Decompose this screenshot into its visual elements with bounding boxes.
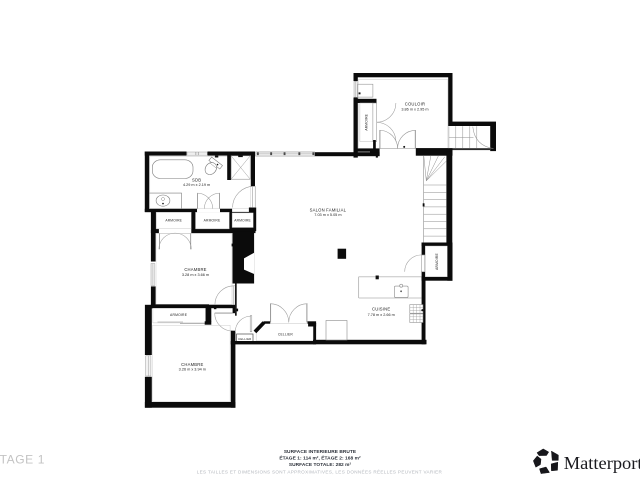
svg-text:ARMOIRE: ARMOIRE	[234, 219, 251, 223]
svg-text:3.26 m x 3.94 m: 3.26 m x 3.94 m	[179, 368, 206, 372]
svg-text:3.28 m x 3.66 m: 3.28 m x 3.66 m	[182, 273, 209, 277]
svg-text:3.86 m x 2.95 m: 3.86 m x 2.95 m	[401, 107, 428, 111]
svg-text:CUISINE: CUISINE	[372, 306, 390, 311]
svg-text:ARMOIRE: ARMOIRE	[204, 219, 221, 223]
svg-text:ÉTAGE 1: ÉTAGE 1	[0, 452, 45, 467]
svg-text:LES TAILLES ET DIMENSIONS SONT: LES TAILLES ET DIMENSIONS SONT APPROXIMA…	[197, 468, 443, 474]
svg-text:7.03 m x 5.05 m: 7.03 m x 5.05 m	[314, 213, 341, 217]
svg-text:4.29 m x 2.19 m: 4.29 m x 2.19 m	[183, 183, 210, 187]
svg-text:ARMOIRE: ARMOIRE	[170, 313, 188, 317]
svg-text:SALON FAMILIAL: SALON FAMILIAL	[310, 207, 347, 212]
svg-text:Matterport: Matterport	[564, 453, 640, 473]
svg-text:SDB: SDB	[192, 178, 201, 183]
svg-text:CELLIER: CELLIER	[278, 333, 293, 337]
svg-text:SURFACE TOTALE: 282 m²: SURFACE TOTALE: 282 m²	[289, 462, 352, 468]
svg-text:ARMOIRE: ARMOIRE	[435, 253, 439, 270]
svg-text:ARMOIRE: ARMOIRE	[365, 113, 369, 130]
svg-text:ARMOIRE: ARMOIRE	[165, 219, 182, 223]
svg-text:CHAMBRE: CHAMBRE	[181, 362, 203, 367]
svg-text:CHAMBRE: CHAMBRE	[184, 267, 206, 272]
svg-text:7.78 m x 2.66 m: 7.78 m x 2.66 m	[368, 313, 395, 317]
svg-text:SURFACE INTERIEURE BRUTE: SURFACE INTERIEURE BRUTE	[284, 449, 357, 455]
svg-text:CELLIER: CELLIER	[238, 337, 251, 341]
svg-text:COULOIR: COULOIR	[405, 101, 425, 106]
